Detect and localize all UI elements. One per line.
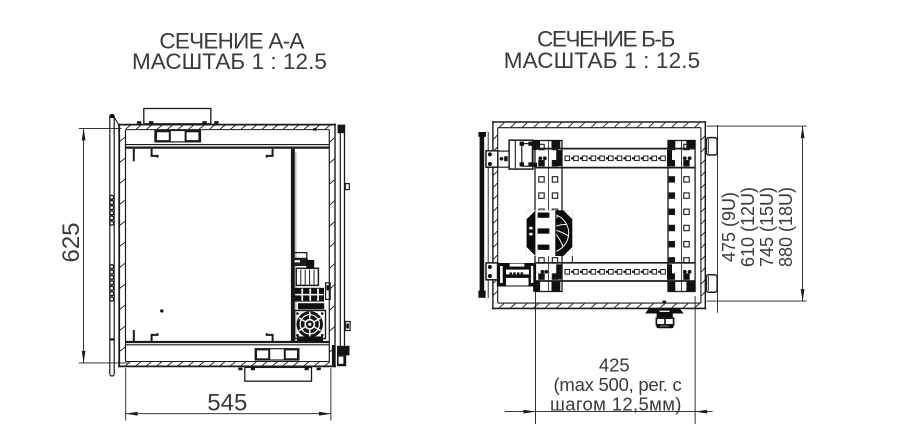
svg-text:625: 625 (58, 222, 85, 262)
svg-text:745 (15U): 745 (15U) (757, 187, 777, 267)
svg-text:МАСШТАБ 1 : 12.5: МАСШТАБ 1 : 12.5 (132, 49, 327, 74)
svg-text:545: 545 (207, 390, 247, 417)
svg-text:880 (18U): 880 (18U) (776, 187, 796, 267)
svg-text:425: 425 (599, 354, 630, 375)
svg-text:шагом 12,5мм): шагом 12,5мм) (550, 393, 682, 414)
svg-text:610 (12U): 610 (12U) (738, 187, 758, 267)
svg-text:(max 500, рег. с: (max 500, рег. с (554, 374, 682, 395)
svg-text:475 (9U): 475 (9U) (719, 192, 739, 262)
svg-text:МАСШТАБ 1 : 12.5: МАСШТАБ 1 : 12.5 (504, 48, 701, 73)
